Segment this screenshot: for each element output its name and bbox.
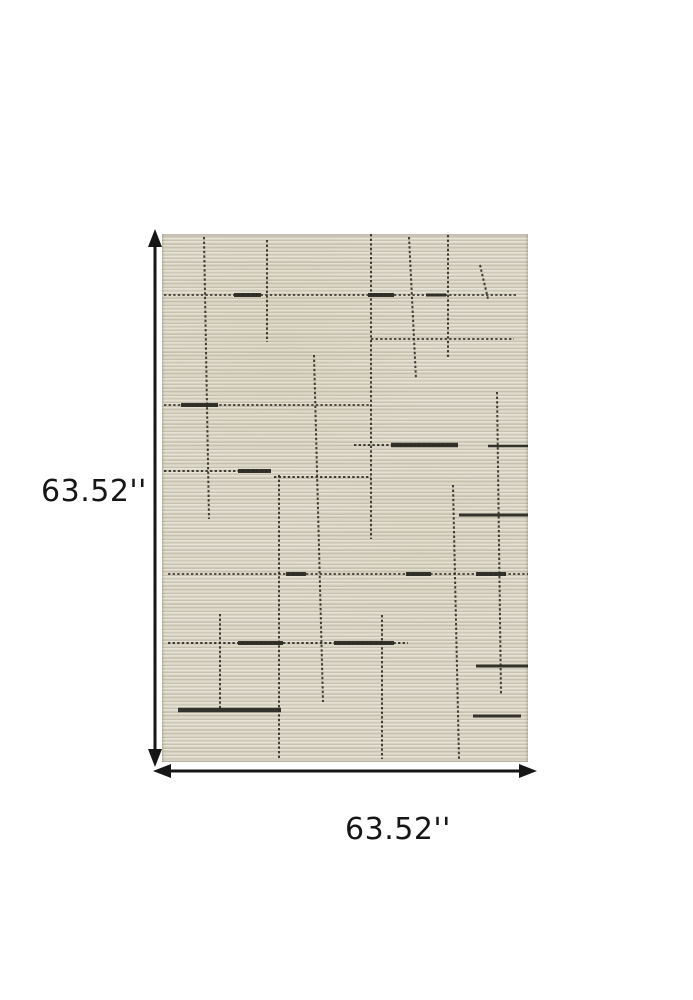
arrow-right-icon <box>519 764 537 778</box>
arrow-up-icon <box>148 229 162 247</box>
product-dimension-image: 63.52'' 63.52'' <box>0 0 693 1000</box>
height-dimension-label: 63.52'' <box>34 476 154 508</box>
rug-photo <box>162 234 528 762</box>
width-dimension-arrow <box>151 759 539 783</box>
arrow-left-icon <box>153 764 171 778</box>
rug-pattern-svg <box>162 234 528 762</box>
width-dimension-label: 63.52'' <box>338 814 458 846</box>
